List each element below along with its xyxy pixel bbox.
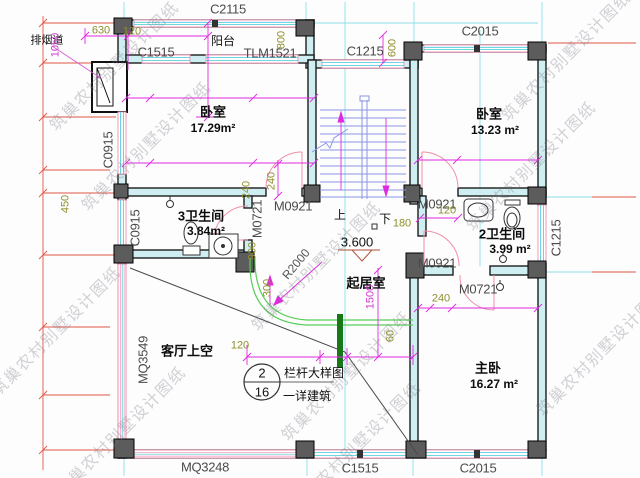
callout-title: 栏杆大样图: [284, 367, 344, 379]
stairs: [312, 96, 406, 199]
callout-note: 一详建筑: [283, 390, 331, 402]
room-area-bedroom2: 13.23 m²: [471, 124, 519, 136]
room-area-bedroom1: 17.29m²: [191, 122, 236, 134]
callout-sheet: 16: [255, 386, 269, 399]
window-code-c0915-lower: C0915: [129, 210, 142, 247]
door-code-tlm1521: TLM1521: [244, 47, 297, 60]
room-label-master: 主卧: [475, 362, 501, 375]
stair-down-label: 下: [379, 213, 391, 225]
callout-number: 2: [258, 367, 265, 380]
window-code-c1215-top: C1215: [347, 45, 384, 58]
room-label-void: 客厅上空: [161, 345, 213, 358]
dim-630: 630: [92, 26, 110, 37]
window-code-c2015-top: C2015: [462, 25, 499, 38]
dim-450: 450: [61, 195, 72, 213]
curtain-code-mq3248: MQ3248: [181, 461, 229, 474]
window-code-c2115: C2115: [210, 3, 246, 16]
door-code-m0921-bedroom1: M0921: [274, 200, 312, 213]
room-label-bath3: 3卫生间: [178, 210, 224, 223]
room-label-balcony: 阳台: [211, 35, 235, 47]
room-label-bath2: 2卫生间: [479, 228, 525, 241]
door-code-m0721-bath3: M0721: [251, 200, 264, 238]
dim-300: 300: [263, 279, 274, 297]
door-code-m0921-master: M0921: [418, 257, 456, 270]
room-area-master: 16.27 m²: [470, 378, 518, 390]
dim-1050: 1050: [51, 33, 62, 57]
dim-600: 600: [388, 39, 399, 57]
window-code-c0915-upper: C0915: [102, 132, 115, 169]
dim-120-top: 120: [123, 27, 141, 38]
dim-240-bath3: 240: [242, 181, 253, 199]
room-label-bedroom1: 卧室: [200, 106, 226, 119]
dim-240-master: 240: [432, 294, 450, 305]
window-code-c1515-bottom: C1515: [342, 462, 379, 475]
dim-60: 60: [386, 330, 397, 342]
window-code-c1515-top: C1515: [138, 46, 175, 59]
dim-1500: 1500: [366, 285, 377, 309]
curtain-code-mq3549: MQ3549: [137, 336, 150, 384]
floor-plan-canvas: 筑巢农村别墅设计图纸 筑巢农村别墅设计图纸 筑巢农村别墅设计图纸 筑巢农村别墅设…: [0, 0, 640, 478]
dim-900: 900: [248, 242, 259, 260]
level-value: 3.600: [341, 236, 374, 249]
room-label-bedroom2: 卧室: [476, 108, 502, 121]
room-area-bath2: 3.99 m²: [489, 243, 530, 255]
room-area-bath3: 3.84m²: [187, 225, 225, 237]
dim-180: 180: [393, 219, 411, 230]
dim-120-rail: 120: [231, 341, 249, 352]
dim-800: 800: [277, 31, 288, 49]
window-code-c2015-bottom: C2015: [460, 462, 497, 475]
window-code-c1215-right: C1215: [550, 220, 563, 257]
dim-240-corridor: 240: [267, 172, 278, 190]
door-code-m0721-master: M0721: [459, 283, 497, 296]
stair-direction-arrows: [338, 112, 389, 196]
dim-120-hall: 120: [438, 206, 456, 217]
stair-up-label: 上: [334, 209, 346, 221]
